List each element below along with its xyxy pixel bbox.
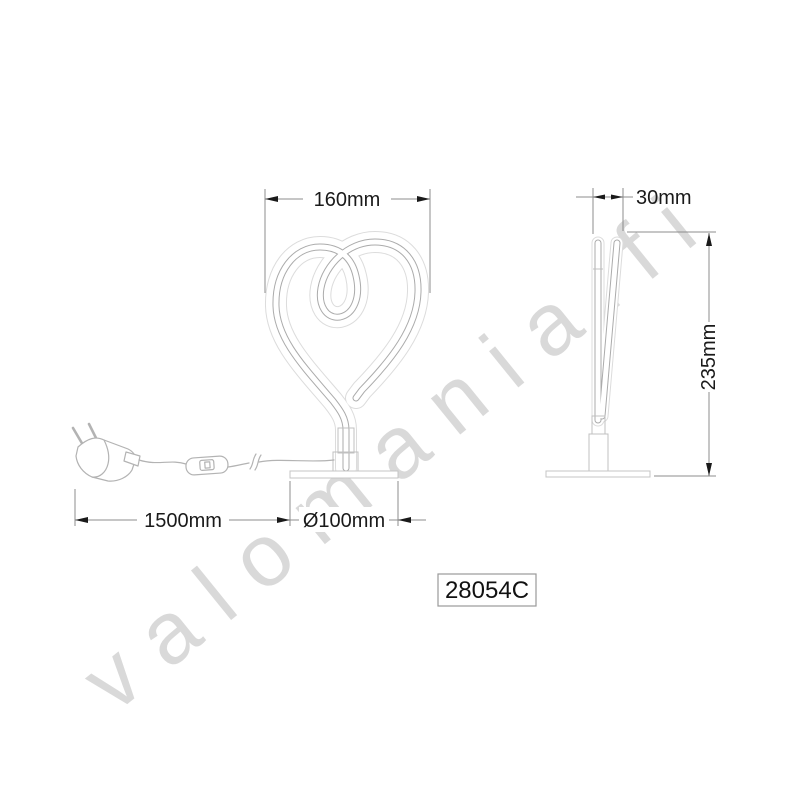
- front-view-heart-lamp: [276, 242, 418, 478]
- inline-switch-drawing: [185, 456, 228, 476]
- lamp-dimension-drawing: 160mm 30mm 235mm 1500mm Ø100mm 28054C: [0, 0, 800, 800]
- side-view-lamp: [546, 243, 650, 477]
- height-dimension-label: 235mm: [698, 324, 720, 391]
- product-code-box: 28054C: [438, 574, 536, 606]
- side-stem-lower: [589, 434, 608, 472]
- side-depth-dimension-label: 30mm: [636, 187, 692, 209]
- front-base-plate: [290, 471, 398, 478]
- cord-segment-1: [139, 460, 186, 464]
- power-plug-drawing: [73, 424, 140, 481]
- side-base-plate: [546, 471, 650, 477]
- dimension-text-backgrounds: [137, 186, 721, 532]
- base-diameter-dimension-label: Ø100mm: [303, 510, 385, 532]
- technical-drawing-page: valomania.fi: [0, 0, 800, 800]
- cord-segment-3: [259, 460, 334, 462]
- product-code-label: 28054C: [445, 577, 529, 604]
- cable-length-dimension-label: 1500mm: [144, 510, 222, 532]
- cord-segment-2: [228, 463, 249, 467]
- front-width-dimension-label: 160mm: [314, 189, 381, 211]
